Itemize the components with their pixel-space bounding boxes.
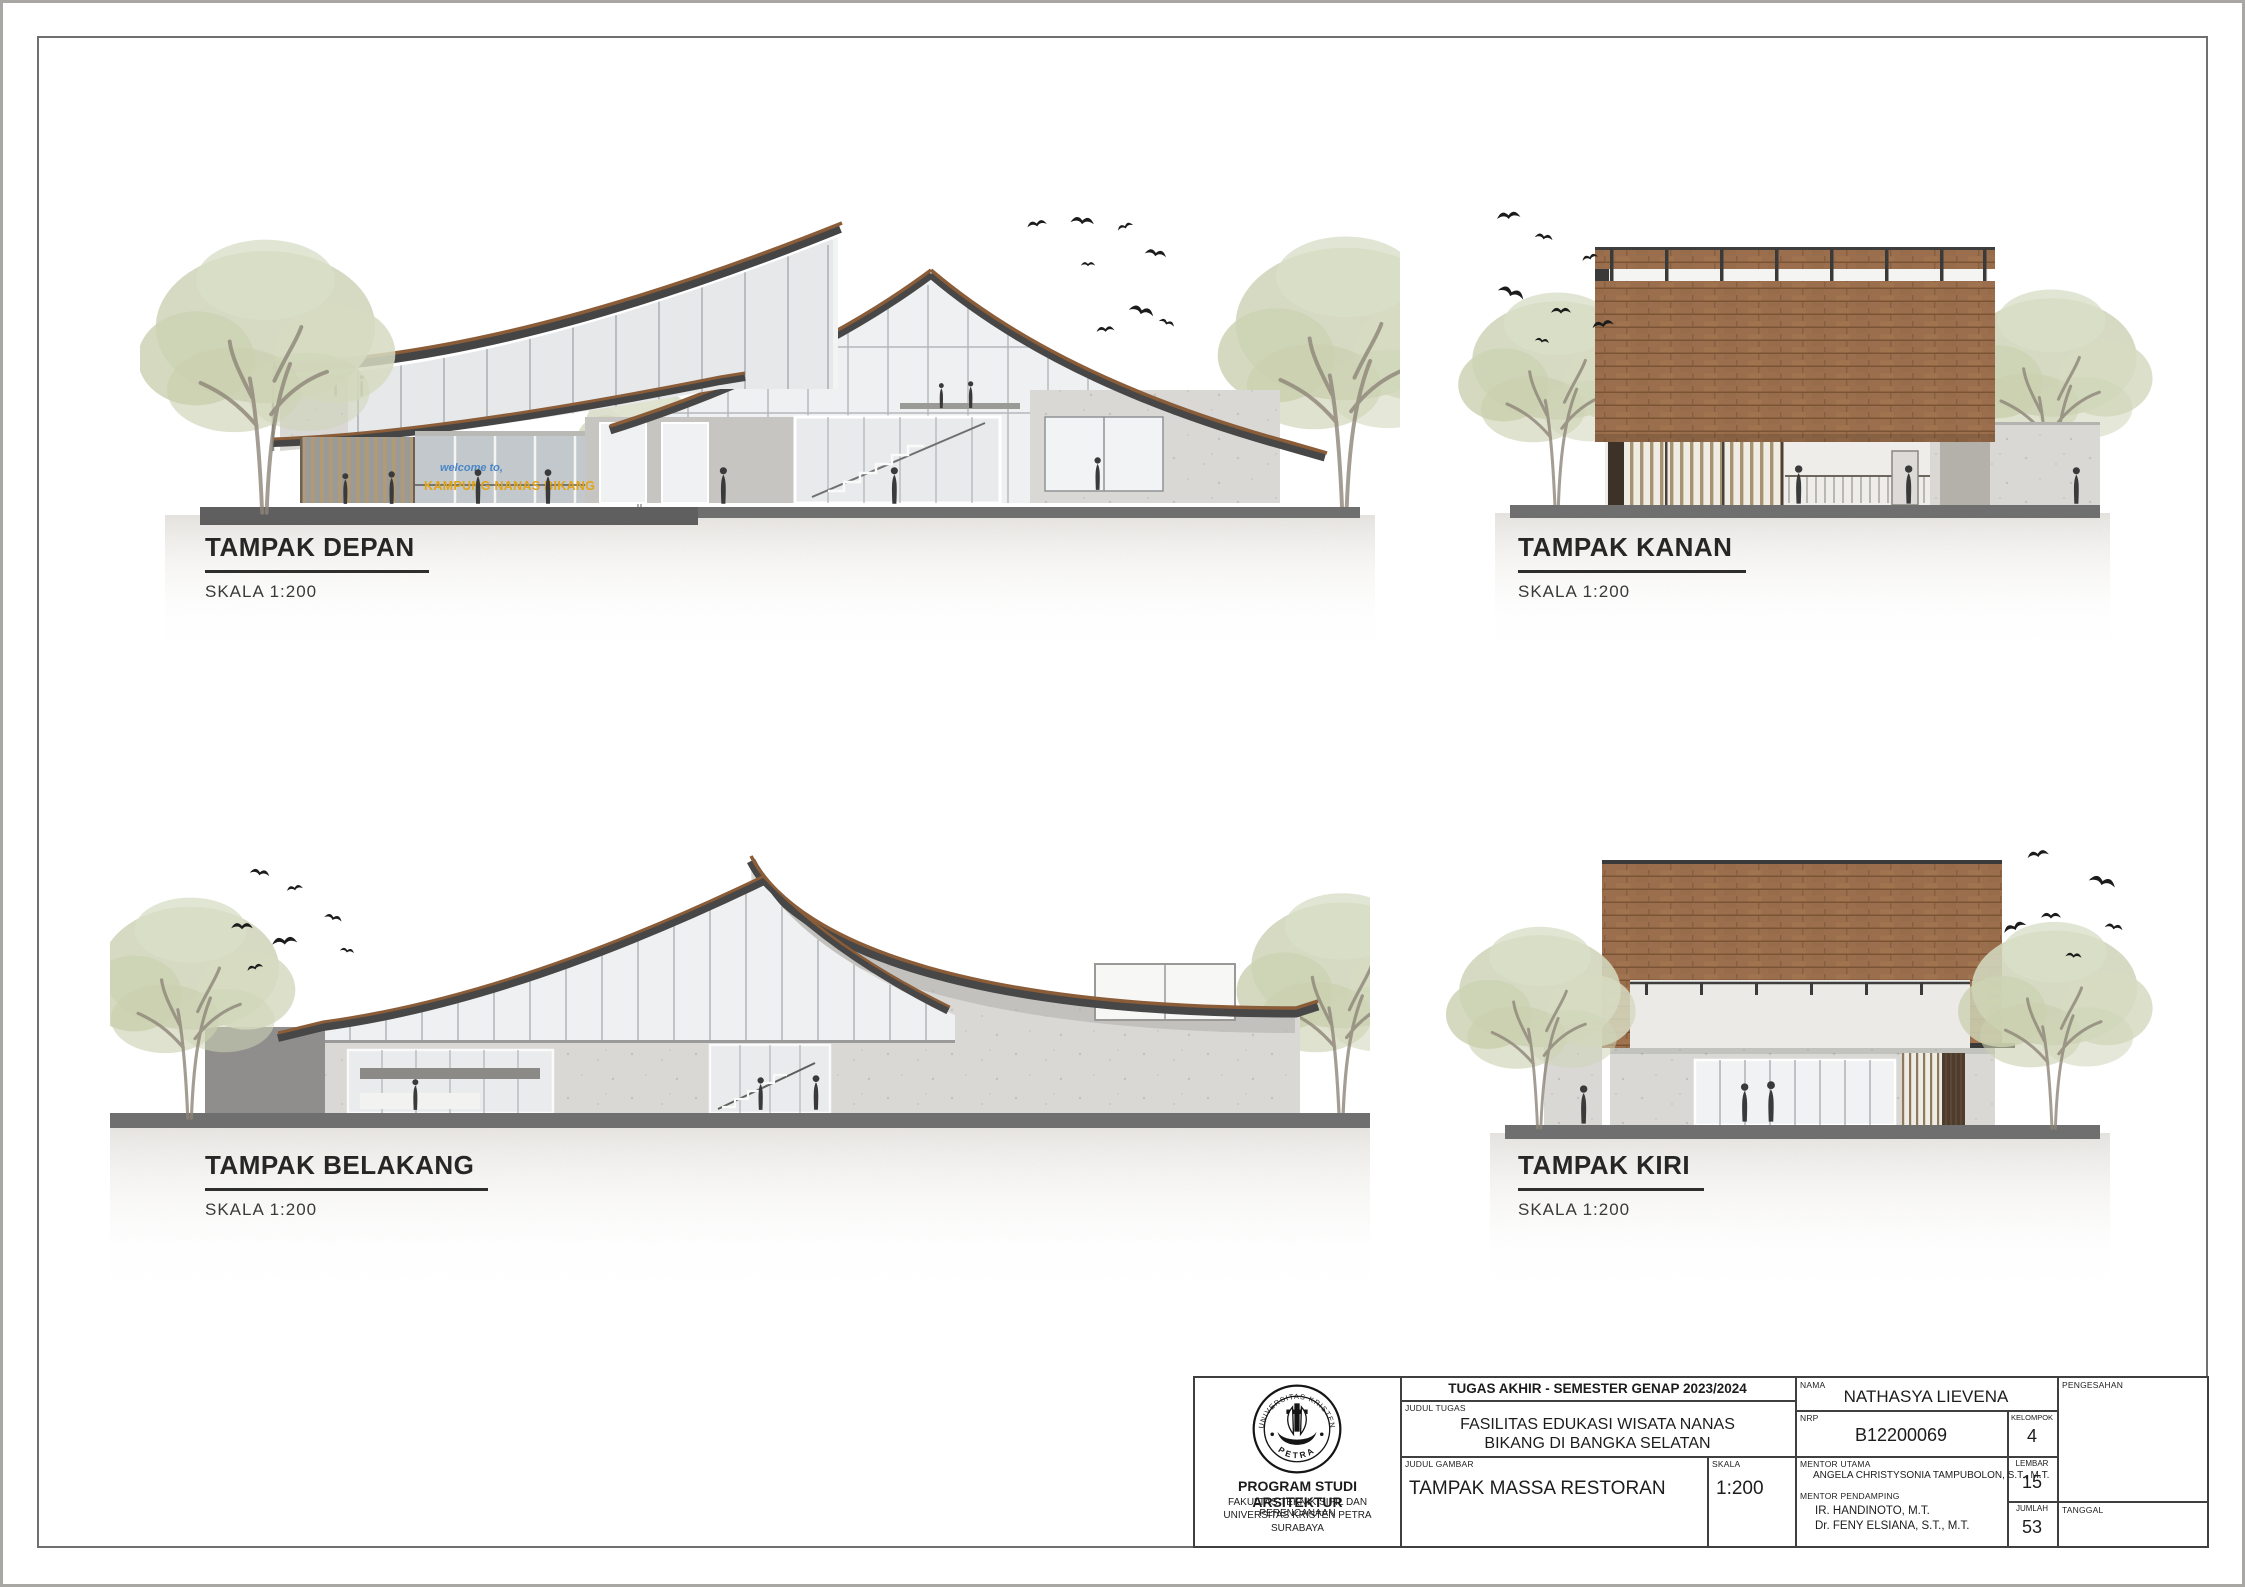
door [1892, 451, 1918, 505]
timber-slat-screen [300, 437, 415, 503]
elevation-scale: SKALA 1:200 [1518, 1200, 1704, 1220]
mezzanine-ledge [900, 403, 1020, 409]
pengesahan-label: PENGESAHAN [2062, 1380, 2123, 1390]
skala-value: 1:200 [1716, 1478, 1764, 1500]
elevation-title: TAMPAK DEPAN [205, 532, 429, 573]
nama-value: NATHASYA LIEVENA [1795, 1387, 2057, 1407]
clerestory-strip [1602, 269, 1988, 281]
drawing-sheet: welcome to, KAMPUNG NANAS BIKANG [0, 0, 2245, 1587]
tall-window [662, 423, 708, 503]
mentor-pendamping-2: Dr. FENY ELSIANA, S.T., M.T. [1815, 1520, 1969, 1532]
glass-doors [1695, 1060, 1895, 1125]
mentor-pendamping-label: MENTOR PENDAMPING [1800, 1491, 1900, 1501]
sheet-header: TUGAS AKHIR - SEMESTER GENAP 2023/2024 [1400, 1381, 1795, 1396]
mentor-utama-label: MENTOR UTAMA [1800, 1459, 1871, 1469]
brick-facade [1595, 281, 1995, 442]
ground-line [1505, 1125, 2100, 1139]
peak-mass [205, 876, 955, 1113]
nrp-label: NRP [1800, 1413, 1819, 1423]
elevation-drawing-tampak-belakang [110, 825, 1370, 1295]
elevation-scale: SKALA 1:200 [205, 1200, 488, 1220]
stair-glass [710, 1045, 830, 1113]
city-name: SURABAYA [1195, 1523, 1400, 1534]
tanggal-label: TANGGAL [2062, 1505, 2103, 1515]
nrp-value: B12200069 [1795, 1425, 2007, 1446]
kelompok-value: 4 [2007, 1426, 2057, 1447]
birds-flock [1027, 216, 1176, 332]
welcome-sign-line1: welcome to, [440, 462, 503, 474]
lembar-label: LEMBAR [2007, 1459, 2057, 1468]
label-tampak-kiri: TAMPAK KIRI SKALA 1:200 [1518, 1150, 1704, 1220]
ground-line [110, 1113, 1370, 1128]
university-logo: UNIVERSITAS KRISTEN PETRA [1251, 1383, 1343, 1475]
judul-gambar-label: JUDUL GAMBAR [1405, 1459, 1474, 1469]
dark-louvre-box [1942, 1053, 1965, 1125]
label-tampak-belakang: TAMPAK BELAKANG SKALA 1:200 [205, 1150, 488, 1220]
rear-window [348, 1050, 553, 1113]
elevation-title: TAMPAK BELAKANG [205, 1150, 488, 1191]
label-tampak-depan: TAMPAK DEPAN SKALA 1:200 [205, 532, 429, 602]
elevation-title: TAMPAK KIRI [1518, 1150, 1704, 1191]
skala-label: SKALA [1712, 1459, 1740, 1469]
lembar-value: 15 [2007, 1472, 2057, 1493]
judul-tugas-line2: BIKANG DI BANGKA SELATAN [1400, 1434, 1795, 1453]
jumlah-label: JUMLAH [2007, 1504, 2057, 1513]
tall-window [600, 423, 646, 503]
ground-line [1510, 505, 2100, 518]
timber-slat-screen [1608, 442, 1783, 505]
entrance-glass: welcome to, KAMPUNG NANAS BIKANG [415, 431, 595, 503]
stair-glass [795, 417, 1000, 503]
welcome-sign-line2: KAMPUNG NANAS BIKANG [424, 479, 595, 493]
university-name: UNIVERSITAS KRISTEN PETRA [1195, 1510, 1400, 1521]
institution-cell: UNIVERSITAS KRISTEN PETRA PROGRAM STUDI … [1195, 1378, 1400, 1546]
elevation-scale: SKALA 1:200 [1518, 582, 1746, 602]
judul-tugas-line1: FASILITAS EDUKASI WISATA NANAS [1400, 1415, 1795, 1434]
recessed-concrete-band [1630, 980, 1970, 1048]
elevation-title: TAMPAK KANAN [1518, 532, 1746, 573]
label-tampak-kanan: TAMPAK KANAN SKALA 1:200 [1518, 532, 1746, 602]
roof-fascia [1595, 249, 1995, 269]
kelompok-label: KELOMPOK [2007, 1413, 2057, 1422]
jumlah-value: 53 [2007, 1517, 2057, 1538]
side-concrete-wall [1995, 422, 2100, 505]
judul-gambar-value: TAMPAK MASSA RESTORAN [1409, 1478, 1666, 1500]
mentor-pendamping-1: IR. HANDINOTO, M.T. [1815, 1505, 1930, 1517]
elevation-scale: SKALA 1:200 [205, 582, 429, 602]
judul-tugas-label: JUDUL TUGAS [1405, 1403, 1466, 1413]
elevation-drawing-tampak-kiri [1440, 825, 2160, 1295]
title-block: UNIVERSITAS KRISTEN PETRA PROGRAM STUDI … [1193, 1376, 2209, 1548]
brick-roof-face [1602, 862, 2002, 980]
